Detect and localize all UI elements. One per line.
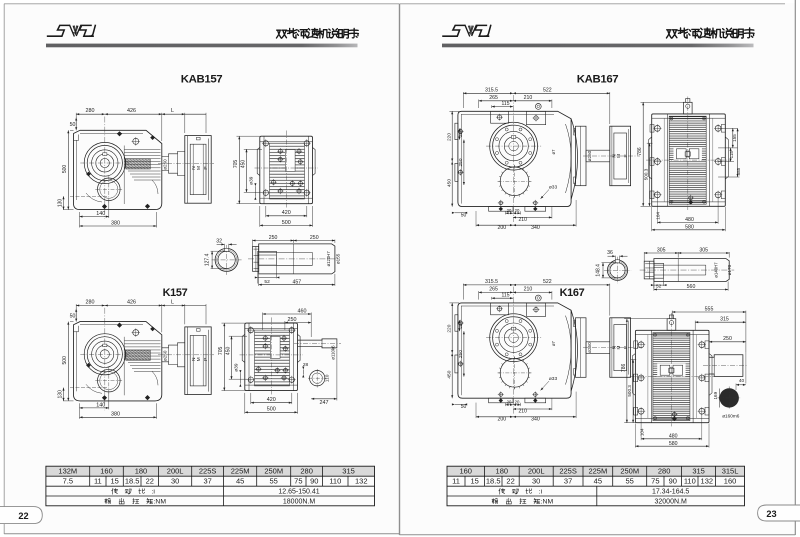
svg-text:522: 522: [543, 279, 552, 285]
svg-text:210: 210: [524, 95, 533, 101]
svg-text:ø250: ø250: [162, 350, 167, 361]
svg-text:460: 460: [298, 308, 307, 314]
svg-text:20: 20: [515, 399, 520, 404]
svg-text:280: 280: [658, 467, 671, 476]
svg-text:560: 560: [687, 284, 696, 290]
svg-text:KAB157: KAB157: [181, 73, 223, 85]
svg-text:36: 36: [607, 250, 613, 256]
svg-text:315: 315: [692, 467, 705, 476]
svg-text:225S: 225S: [559, 467, 577, 476]
svg-text:200: 200: [497, 416, 506, 422]
svg-text:210: 210: [524, 287, 533, 293]
svg-text:380: 380: [111, 412, 120, 418]
svg-text:30: 30: [532, 477, 540, 486]
svg-text:ø7: ø7: [551, 340, 556, 346]
svg-text:265: 265: [489, 287, 498, 293]
svg-text:500: 500: [267, 407, 276, 413]
svg-text:32000N.M: 32000N.M: [655, 498, 687, 505]
svg-text:210: 210: [519, 408, 528, 414]
svg-text:380: 380: [111, 220, 120, 226]
svg-text:130: 130: [57, 390, 63, 399]
svg-text:225S: 225S: [199, 467, 217, 476]
svg-text:315.5: 315.5: [485, 88, 498, 94]
svg-text:37: 37: [564, 477, 572, 486]
svg-text:ø33: ø33: [549, 376, 558, 382]
svg-text:ø120H7: ø120H7: [326, 251, 331, 267]
svg-text:225M: 225M: [588, 467, 607, 476]
svg-text:115: 115: [502, 292, 510, 298]
svg-text:132M: 132M: [58, 467, 77, 476]
svg-text:500.3: 500.3: [643, 168, 648, 180]
svg-text:115: 115: [502, 101, 510, 107]
svg-text:37: 37: [203, 477, 211, 486]
svg-text:786: 786: [637, 147, 643, 156]
svg-text:180: 180: [135, 467, 148, 476]
svg-text:786: 786: [621, 364, 627, 373]
svg-text:160: 160: [100, 467, 113, 476]
svg-text:450: 450: [446, 370, 452, 378]
svg-text:KAB167: KAB167: [577, 73, 619, 85]
svg-text:200: 200: [497, 225, 506, 231]
svg-text:12.65-150.41: 12.65-150.41: [278, 488, 319, 495]
svg-text:250M: 250M: [620, 467, 639, 476]
svg-text:110: 110: [329, 477, 341, 486]
svg-text::i: :i: [539, 488, 543, 495]
svg-text:18.5: 18.5: [486, 477, 501, 486]
svg-text:ø160m6: ø160m6: [722, 414, 740, 419]
svg-text:M: M: [616, 154, 621, 158]
svg-text:104: 104: [656, 212, 661, 220]
svg-text:315L: 315L: [722, 467, 739, 476]
svg-text:385: 385: [736, 167, 741, 175]
svg-text:18000N.M: 18000N.M: [283, 498, 315, 505]
svg-text:220: 220: [446, 133, 452, 141]
svg-text:ø33: ø33: [549, 184, 558, 190]
svg-text:280: 280: [86, 108, 95, 114]
svg-text:11: 11: [94, 477, 102, 486]
svg-text:P: P: [623, 346, 628, 349]
svg-text:22: 22: [458, 323, 463, 329]
svg-text:315.5: 315.5: [485, 279, 498, 285]
svg-text:20: 20: [515, 208, 520, 213]
svg-text:22: 22: [146, 477, 154, 486]
svg-text:132: 132: [701, 477, 714, 486]
svg-text:50: 50: [461, 404, 467, 410]
svg-text:480: 480: [669, 433, 678, 439]
svg-text:11: 11: [452, 477, 460, 486]
svg-text:15: 15: [110, 477, 118, 486]
svg-text:340: 340: [531, 225, 540, 231]
svg-text:160: 160: [459, 467, 472, 476]
svg-text:ø39: ø39: [233, 363, 239, 372]
svg-text:55: 55: [270, 477, 278, 486]
svg-text:169: 169: [713, 391, 718, 399]
svg-text:522: 522: [543, 88, 552, 94]
svg-text:500: 500: [62, 165, 68, 174]
svg-text:18.5: 18.5: [125, 477, 140, 486]
svg-text:200L: 200L: [528, 467, 545, 476]
svg-text:280: 280: [86, 300, 95, 306]
svg-text:22: 22: [506, 477, 514, 486]
svg-text:500: 500: [282, 220, 291, 226]
svg-text:K167: K167: [560, 287, 585, 299]
svg-text:L: L: [171, 108, 174, 114]
svg-text:450: 450: [240, 160, 246, 169]
svg-text:N: N: [191, 166, 197, 170]
svg-text:340: 340: [531, 416, 540, 422]
svg-text:315: 315: [342, 467, 355, 476]
svg-text:ø110k6: ø110k6: [330, 345, 335, 360]
svg-text:ø140H7: ø140H7: [714, 262, 719, 278]
svg-text:250: 250: [458, 350, 464, 358]
svg-text:500: 500: [62, 356, 68, 365]
svg-text:ø155: ø155: [335, 253, 340, 264]
svg-text:250: 250: [288, 317, 297, 323]
svg-text:ø7: ø7: [551, 149, 556, 155]
svg-text:20: 20: [507, 399, 512, 404]
svg-text:130: 130: [57, 199, 63, 208]
svg-text:45: 45: [236, 477, 244, 486]
svg-text:250: 250: [310, 235, 319, 241]
svg-text::i: :i: [152, 488, 156, 495]
svg-text:148.4: 148.4: [595, 264, 601, 277]
svg-text:115: 115: [729, 151, 734, 159]
svg-text:90: 90: [310, 477, 318, 486]
svg-text:50: 50: [70, 122, 76, 128]
svg-text:140: 140: [96, 403, 105, 409]
svg-text:N: N: [191, 357, 197, 361]
svg-text:M: M: [616, 346, 621, 350]
svg-text:P: P: [623, 154, 628, 157]
svg-text:110: 110: [325, 374, 331, 382]
svg-text:22: 22: [458, 132, 463, 138]
svg-text:305: 305: [699, 247, 708, 253]
svg-text:580: 580: [685, 224, 694, 230]
svg-text:180: 180: [496, 467, 509, 476]
svg-text:104: 104: [639, 428, 644, 436]
svg-text:32: 32: [216, 238, 222, 244]
svg-text:ø250: ø250: [162, 159, 167, 170]
svg-text:580: 580: [669, 441, 678, 447]
svg-text:45: 45: [594, 477, 602, 486]
svg-text:30: 30: [171, 477, 179, 486]
svg-text:K157: K157: [163, 287, 188, 299]
svg-text:500.3: 500.3: [627, 385, 632, 397]
svg-text:ø39: ø39: [248, 176, 254, 185]
svg-text:220: 220: [446, 324, 452, 332]
svg-text:P: P: [203, 358, 209, 361]
svg-text:50: 50: [461, 213, 467, 219]
svg-text:15: 15: [471, 477, 479, 486]
svg-text:250M: 250M: [264, 467, 283, 476]
svg-text:20: 20: [507, 208, 512, 213]
svg-text:160: 160: [724, 477, 737, 486]
svg-text:705: 705: [233, 160, 239, 169]
svg-text:265: 265: [489, 95, 498, 101]
svg-text:L: L: [171, 300, 174, 306]
svg-text:250: 250: [269, 235, 278, 241]
svg-text:23: 23: [766, 509, 776, 519]
svg-text::NM: :NM: [541, 498, 554, 505]
svg-text:ø250: ø250: [587, 342, 592, 353]
svg-text:555: 555: [705, 306, 714, 312]
svg-text:90: 90: [669, 477, 677, 486]
svg-text:110: 110: [684, 477, 696, 486]
svg-text:M: M: [196, 357, 202, 361]
svg-text:M: M: [196, 166, 202, 170]
svg-text:75: 75: [294, 477, 302, 486]
svg-text:50: 50: [70, 313, 76, 319]
svg-text:315: 315: [720, 317, 729, 323]
svg-text:200L: 200L: [167, 467, 184, 476]
svg-text:127.4: 127.4: [204, 253, 210, 266]
svg-text:450: 450: [446, 179, 452, 187]
svg-text:155: 155: [732, 134, 737, 142]
svg-text:55: 55: [626, 477, 634, 486]
svg-text:250: 250: [723, 336, 732, 342]
svg-text:305: 305: [657, 247, 666, 253]
svg-text:7.5: 7.5: [63, 477, 73, 486]
svg-text:22: 22: [18, 511, 28, 521]
svg-text:ø170: ø170: [727, 264, 732, 275]
svg-text:75: 75: [651, 477, 659, 486]
svg-text:280: 280: [300, 467, 313, 476]
svg-text:457: 457: [292, 279, 301, 285]
svg-text::NM: :NM: [154, 498, 167, 505]
svg-text:140: 140: [96, 211, 105, 217]
svg-text:250: 250: [458, 158, 464, 166]
svg-text:450: 450: [225, 347, 231, 356]
svg-text:132: 132: [355, 477, 368, 486]
svg-text:426: 426: [127, 108, 136, 114]
svg-text:247: 247: [320, 400, 329, 406]
svg-text:ø250: ø250: [587, 150, 592, 161]
svg-text:P: P: [203, 166, 209, 169]
svg-text:480: 480: [685, 217, 694, 223]
svg-text:420: 420: [282, 210, 291, 216]
svg-text:17.34-164.5: 17.34-164.5: [652, 488, 689, 495]
svg-text:225M: 225M: [231, 467, 250, 476]
svg-text:426: 426: [127, 300, 136, 306]
svg-text:705: 705: [218, 347, 224, 356]
svg-text:40: 40: [739, 378, 745, 384]
svg-text:420: 420: [267, 397, 276, 403]
svg-text:210: 210: [519, 217, 528, 223]
svg-text:52: 52: [264, 279, 270, 285]
